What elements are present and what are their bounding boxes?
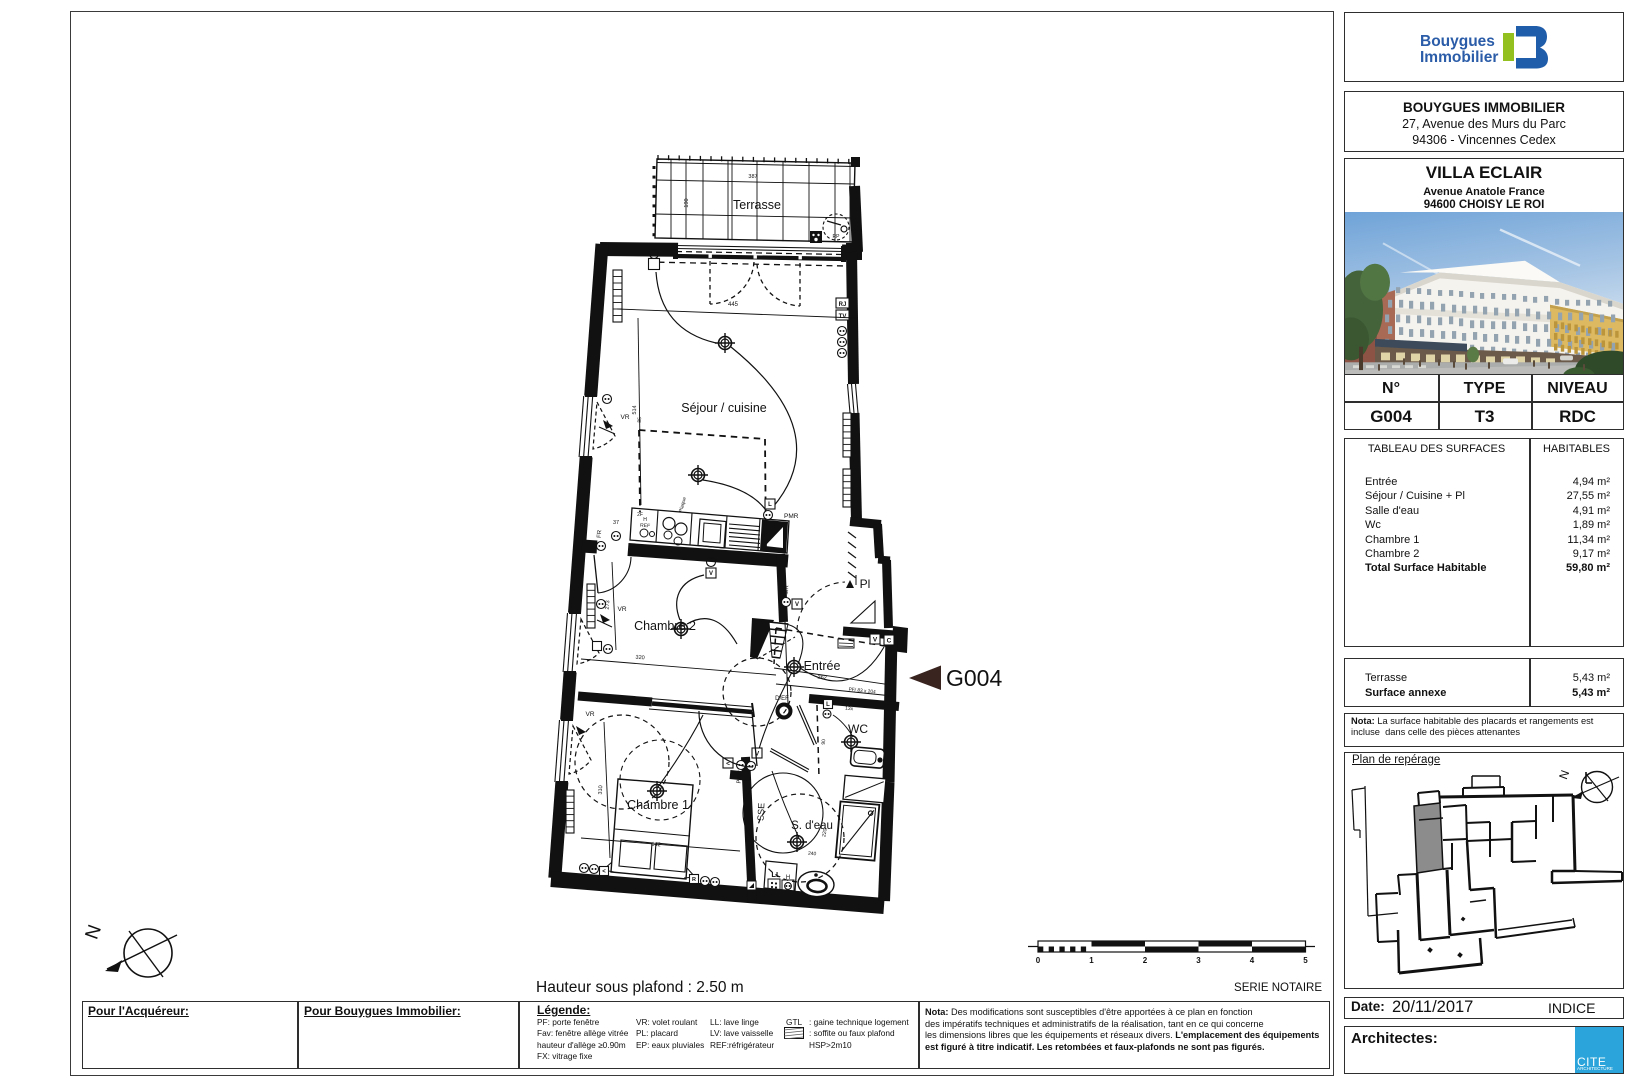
svg-text:N: N	[1556, 768, 1572, 781]
